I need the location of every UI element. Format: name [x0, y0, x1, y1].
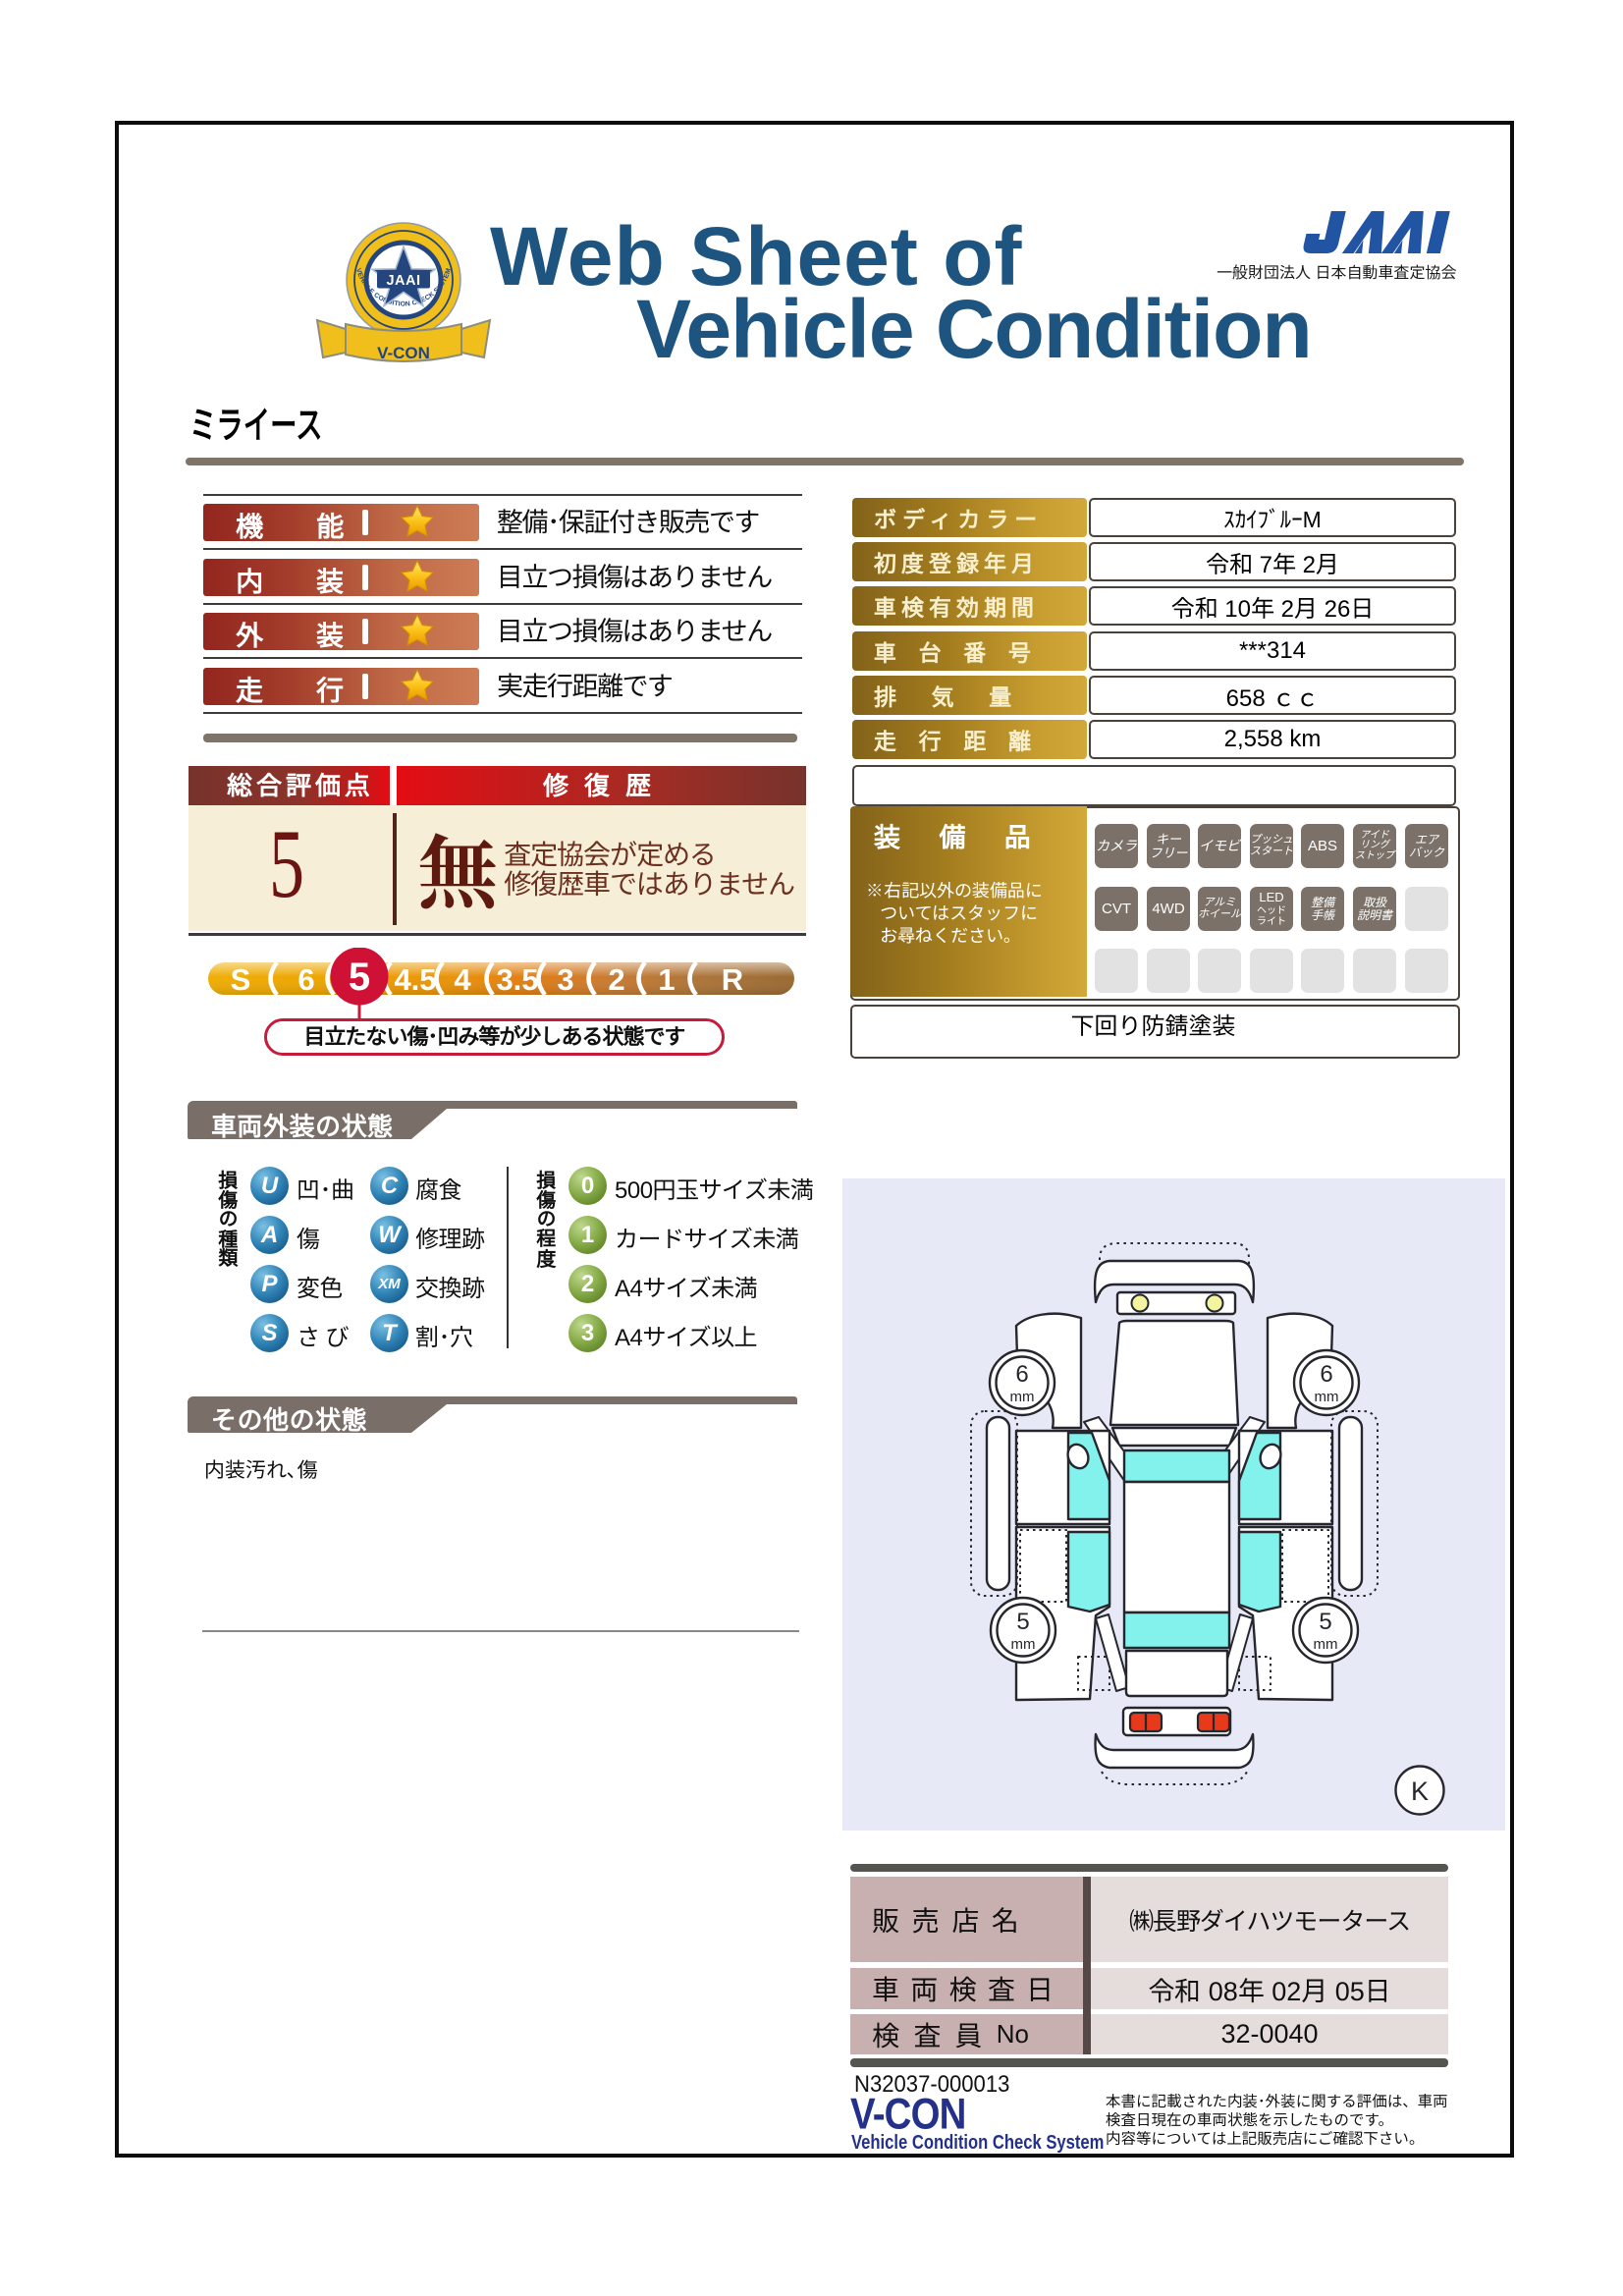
svg-text:K: K [1411, 1777, 1429, 1806]
svg-text:mm: mm [1315, 1389, 1339, 1405]
svg-text:3.5: 3.5 [496, 962, 538, 997]
svg-text:mm: mm [1010, 1389, 1035, 1405]
svg-text:2: 2 [608, 962, 624, 997]
svg-text:5: 5 [349, 956, 370, 999]
svg-text:mm: mm [1011, 1636, 1036, 1653]
svg-text:1: 1 [658, 962, 675, 997]
svg-text:5: 5 [1319, 1609, 1331, 1635]
svg-text:6: 6 [298, 962, 314, 997]
svg-text:3: 3 [557, 962, 573, 997]
svg-text:4.5: 4.5 [394, 962, 436, 997]
svg-text:S: S [231, 962, 251, 997]
svg-text:6: 6 [1320, 1361, 1332, 1388]
svg-text:mm: mm [1314, 1636, 1338, 1653]
svg-text:JAAI: JAAI [386, 273, 420, 289]
svg-text:6: 6 [1015, 1361, 1028, 1388]
svg-text:4: 4 [454, 962, 471, 997]
svg-text:R: R [722, 962, 743, 997]
svg-text:V-CON: V-CON [377, 344, 430, 362]
svg-text:5: 5 [1016, 1609, 1029, 1635]
